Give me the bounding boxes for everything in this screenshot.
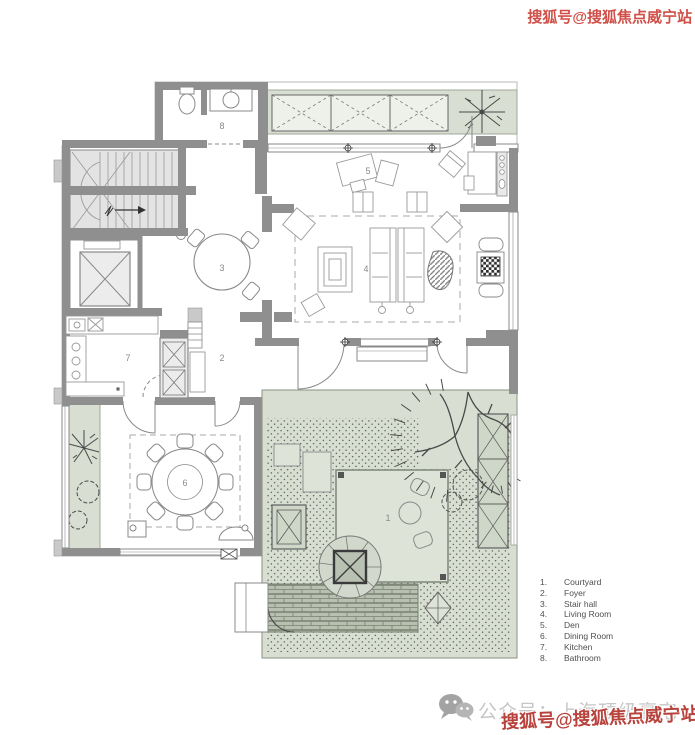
legend-item: 5. Den xyxy=(540,620,613,631)
staircase xyxy=(70,150,196,240)
dining-room xyxy=(128,434,268,632)
legend-item: 4. Living Room xyxy=(540,609,613,620)
foyer-console xyxy=(190,352,205,392)
closet-strip xyxy=(266,90,517,134)
legend-item: 6. Dining Room xyxy=(540,631,613,642)
legend-item: 7. Kitchen xyxy=(540,642,613,653)
game-table xyxy=(477,238,504,297)
watermark-top-right: 搜狐号@搜狐焦点威宁站 xyxy=(527,6,692,27)
wechat-icon xyxy=(438,692,474,724)
legend: 1. Courtyard 2. Foyer 3. Stair hall 4. L… xyxy=(540,577,613,663)
courtyard-area xyxy=(262,379,521,658)
room-label-foyer: 2 xyxy=(219,353,224,363)
bathroom-fixtures xyxy=(179,87,252,114)
floor-plan-page: 1 2 3 4 5 6 7 8 1. Courtyard 2. Foyer 3.… xyxy=(0,0,695,735)
room-label-kitchen: 7 xyxy=(125,353,130,363)
legend-item: 2. Foyer xyxy=(540,588,613,599)
legend-item: 8. Bathroom xyxy=(540,653,613,664)
room-label-courtyard: 1 xyxy=(385,513,390,523)
round-planter-feature xyxy=(319,536,381,598)
den-furniture xyxy=(337,151,507,212)
room-label-stair-hall: 3 xyxy=(219,263,224,273)
room-label-living-room: 4 xyxy=(363,264,368,274)
legend-item: 3. Stair hall xyxy=(540,599,613,610)
living-room xyxy=(283,208,504,322)
kitchen-fixtures xyxy=(66,316,158,396)
room-label-den: 5 xyxy=(365,166,370,176)
elevator xyxy=(68,238,140,316)
dining-planter-strip xyxy=(66,404,100,554)
legend-item: 1. Courtyard xyxy=(540,577,613,588)
stone-coffee-table xyxy=(428,251,453,290)
planter-box-left xyxy=(272,505,306,549)
room-label-bathroom: 8 xyxy=(219,121,224,131)
planter-column-right xyxy=(478,414,508,548)
entry-porch xyxy=(235,583,268,632)
room-label-dining-room: 6 xyxy=(182,478,187,488)
